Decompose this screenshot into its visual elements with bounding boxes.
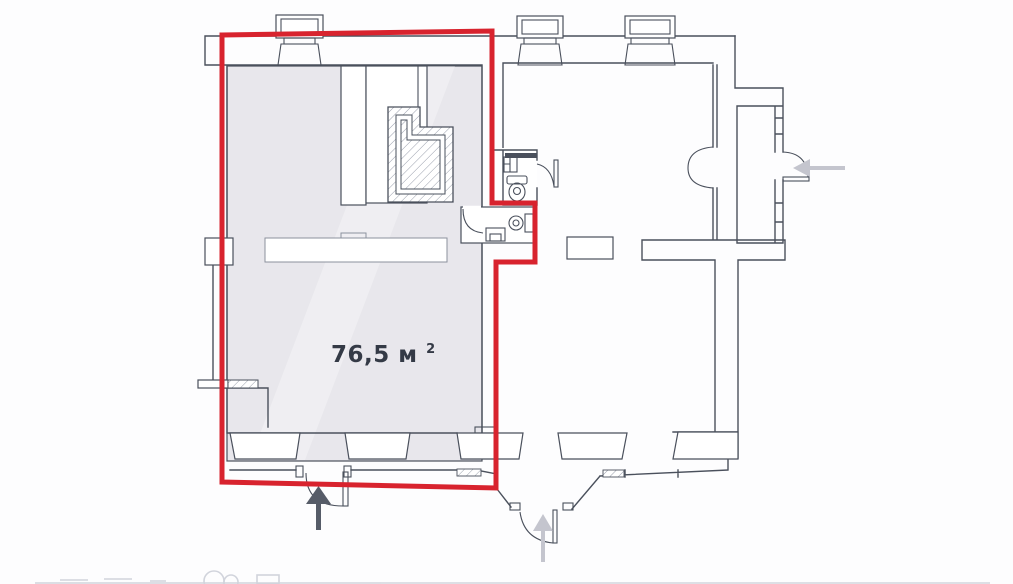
area-value: 76,5 м [331, 342, 418, 368]
area-label: 76,5 м 2 [331, 342, 436, 368]
upper-wc-door-swing [537, 164, 554, 186]
floor-plan-canvas: 76,5 м 2 [0, 0, 1013, 584]
partition-wall-horizontal [265, 238, 447, 262]
door-stub [296, 466, 303, 477]
wall-pier [205, 238, 233, 265]
chimney-stack-left [276, 15, 323, 65]
window-1 [230, 433, 300, 459]
chimney-stack-middle [517, 16, 563, 65]
upper-wc-door-leaf [554, 160, 558, 187]
window-2 [345, 433, 410, 459]
window-5 [673, 432, 738, 459]
right-unit-walls [497, 36, 785, 509]
hatched-wall-segment-left [228, 380, 258, 388]
entry-door-right-leaf [553, 510, 557, 543]
double-door-interior [688, 147, 713, 188]
hatched-sill-left [457, 469, 481, 476]
cutoff-bottom-strip [35, 571, 990, 584]
area-superscript: 2 [426, 342, 436, 357]
partition-wall-vertical [341, 66, 366, 205]
side-door-leaf [783, 177, 809, 181]
chimney-stacks [276, 15, 675, 65]
lower-wc-room [461, 207, 535, 243]
hatched-sill-right [603, 470, 624, 477]
freestanding-wall [567, 237, 613, 259]
entrance-arrow-bottom-left [306, 486, 331, 530]
floor-plan-drawing: 76,5 м 2 [0, 0, 1013, 584]
window-4 [558, 433, 627, 459]
window-3 [457, 433, 523, 459]
entrance-arrow-right [793, 159, 845, 177]
door-stub [510, 503, 520, 510]
chimney-stack-right [625, 16, 675, 65]
